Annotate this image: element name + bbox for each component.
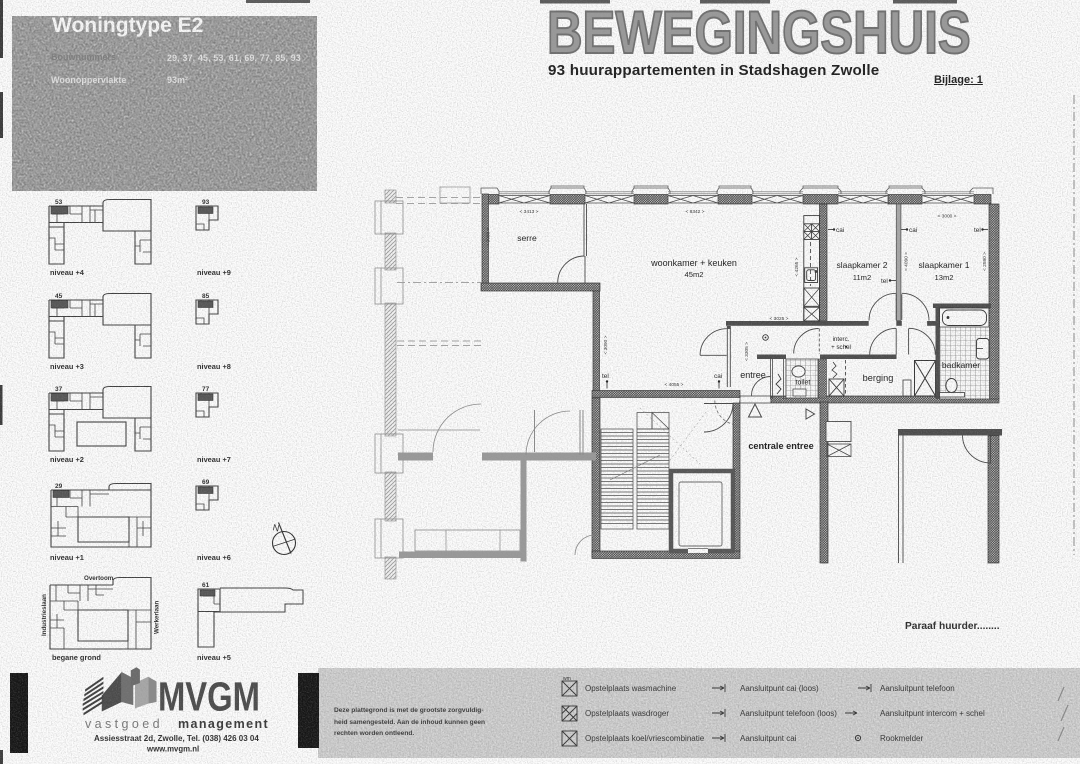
svg-text:niveau +9: niveau +9 bbox=[197, 268, 231, 277]
svg-text:Werkerlaan: Werkerlaan bbox=[154, 601, 161, 634]
svg-text:13m2: 13m2 bbox=[935, 273, 954, 282]
svg-text:+ schel: + schel bbox=[831, 344, 851, 351]
svg-text:niveau +7: niveau +7 bbox=[197, 455, 231, 464]
svg-text:< 3025 >: < 3025 > bbox=[770, 316, 789, 322]
svg-text:Aansluitpunt telefoon (loos): Aansluitpunt telefoon (loos) bbox=[740, 709, 837, 718]
svg-text:< 3080 >: < 3080 > bbox=[486, 227, 492, 246]
svg-text:Aansluitpunt telefoon: Aansluitpunt telefoon bbox=[880, 684, 955, 693]
svg-text:Overtoom: Overtoom bbox=[84, 575, 114, 582]
svg-text:< 4090 >: < 4090 > bbox=[904, 252, 910, 271]
svg-text:45m2: 45m2 bbox=[685, 270, 704, 279]
svg-text:< 4055 >: < 4055 > bbox=[665, 382, 684, 388]
svg-text:11m2: 11m2 bbox=[853, 273, 871, 282]
svg-text:begane grond: begane grond bbox=[52, 653, 101, 662]
svg-text:niveau +4: niveau +4 bbox=[50, 268, 85, 277]
svg-text:niveau +5: niveau +5 bbox=[197, 653, 231, 662]
svg-text:N: N bbox=[272, 522, 280, 533]
svg-text:+ schel: + schel bbox=[860, 712, 877, 718]
svg-text:cai: cai bbox=[728, 732, 735, 738]
svg-text:tel: tel bbox=[974, 227, 981, 234]
svg-text:niveau +8: niveau +8 bbox=[197, 362, 231, 371]
svg-text:slaapkamer 1: slaapkamer 1 bbox=[918, 260, 969, 270]
svg-text:vastgoed: vastgoed bbox=[85, 717, 163, 731]
svg-text:Opstelplaats koel/vriescombina: Opstelplaats koel/vriescombinatie bbox=[585, 734, 705, 743]
svg-text:< 3305 >: < 3305 > bbox=[744, 342, 750, 361]
svg-text:cai: cai bbox=[714, 373, 722, 380]
svg-text:entree: entree bbox=[740, 370, 766, 380]
svg-text:wm: wm bbox=[563, 676, 571, 682]
svg-text:management: management bbox=[178, 717, 269, 731]
svg-text:interc.: interc. bbox=[833, 336, 850, 343]
svg-text:53: 53 bbox=[55, 199, 63, 206]
svg-text:Opstelplaats wasmachine: Opstelplaats wasmachine bbox=[585, 684, 677, 693]
svg-text:niveau +2: niveau +2 bbox=[50, 455, 84, 464]
svg-text:Aansluitpunt intercom + schel: Aansluitpunt intercom + schel bbox=[880, 709, 985, 718]
svg-text:< 3000 >: < 3000 > bbox=[938, 214, 957, 220]
svg-text:< 3090 >: < 3090 > bbox=[603, 335, 609, 354]
svg-text:toilet: toilet bbox=[796, 380, 811, 387]
svg-text:niveau +6: niveau +6 bbox=[197, 553, 231, 562]
svg-text:Opstelplaats wasdroger: Opstelplaats wasdroger bbox=[585, 709, 669, 718]
svg-text:cai: cai bbox=[836, 227, 844, 234]
svg-text:Assiesstraat 2d, Zwolle, Tel.: Assiesstraat 2d, Zwolle, Tel. (038) 426 … bbox=[94, 734, 259, 743]
svg-text:29: 29 bbox=[55, 483, 63, 490]
svg-text:Rookmelder: Rookmelder bbox=[880, 734, 923, 743]
svg-text:cai: cai bbox=[728, 682, 735, 688]
svg-text:Aansluitpunt cai: Aansluitpunt cai bbox=[740, 734, 797, 743]
svg-text:< 3413 >: < 3413 > bbox=[520, 209, 539, 215]
svg-text:berging: berging bbox=[863, 373, 894, 383]
svg-text:37: 37 bbox=[55, 386, 63, 393]
svg-text:niveau +3: niveau +3 bbox=[50, 362, 84, 371]
svg-text:77: 77 bbox=[202, 386, 210, 393]
svg-text:Aansluitpunt cai (loos): Aansluitpunt cai (loos) bbox=[740, 684, 819, 693]
svg-text:www.mvgm.nl: www.mvgm.nl bbox=[146, 745, 199, 754]
svg-text:93: 93 bbox=[202, 199, 210, 206]
svg-text:serre: serre bbox=[517, 233, 537, 243]
svg-text:< 8342 >: < 8342 > bbox=[686, 209, 705, 215]
svg-text:interc.: interc. bbox=[860, 706, 874, 712]
svg-text:MVGM: MVGM bbox=[158, 673, 260, 719]
svg-text:61: 61 bbox=[202, 582, 210, 589]
svg-text:tel: tel bbox=[602, 373, 609, 380]
svg-text:< 4265 >: < 4265 > bbox=[794, 257, 800, 276]
svg-text:< 2590 >: < 2590 > bbox=[982, 252, 988, 271]
svg-text:woonkamer + keuken: woonkamer + keuken bbox=[650, 258, 737, 268]
svg-text:niveau +1: niveau +1 bbox=[50, 553, 84, 562]
svg-text:tel: tel bbox=[728, 707, 734, 713]
svg-text:badkamer: badkamer bbox=[942, 360, 980, 370]
svg-text:cai: cai bbox=[909, 227, 917, 234]
svg-text:tel: tel bbox=[881, 278, 888, 285]
svg-text:69: 69 bbox=[202, 479, 210, 486]
svg-text:tel: tel bbox=[874, 682, 880, 688]
svg-text:45: 45 bbox=[55, 293, 63, 300]
svg-text:85: 85 bbox=[202, 293, 210, 300]
svg-text:slaapkamer 2: slaapkamer 2 bbox=[836, 260, 887, 270]
svg-text:Industrieslaan: Industrieslaan bbox=[41, 594, 48, 636]
svg-text:centrale entree: centrale entree bbox=[748, 441, 813, 451]
